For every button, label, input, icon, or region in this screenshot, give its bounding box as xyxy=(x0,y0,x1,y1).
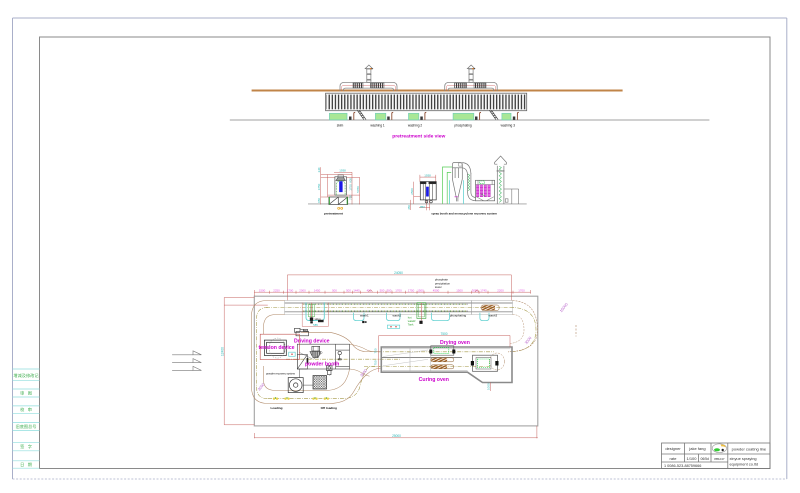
svg-text:750: 750 xyxy=(374,348,378,353)
svg-text:wash2: wash2 xyxy=(392,313,401,317)
svg-text:1700: 1700 xyxy=(287,288,294,292)
svg-text:designer: designer xyxy=(665,446,681,451)
svg-text:1700: 1700 xyxy=(518,288,525,292)
svg-text:500: 500 xyxy=(346,288,351,292)
svg-text:powder coating line: powder coating line xyxy=(732,447,767,452)
svg-text:wateR: wateR xyxy=(408,319,416,323)
svg-text:1450: 1450 xyxy=(314,288,321,292)
svg-text:1445: 1445 xyxy=(353,288,360,292)
svg-text:1750: 1750 xyxy=(348,184,352,191)
svg-text:1750: 1750 xyxy=(408,288,415,292)
svg-text:skim: skim xyxy=(337,123,344,127)
svg-text:equipment co.ltd: equipment co.ltd xyxy=(730,461,759,466)
svg-text:24050: 24050 xyxy=(394,271,403,275)
svg-text:xinyue spraying: xinyue spraying xyxy=(730,456,757,461)
svg-text:jake fang: jake fang xyxy=(688,446,705,451)
svg-text:885A37: 885A37 xyxy=(714,457,725,461)
svg-text:600: 600 xyxy=(348,178,352,183)
svg-text:签 字: 签 字 xyxy=(20,443,32,449)
svg-text:hot: hot xyxy=(408,316,412,320)
svg-text:750: 750 xyxy=(374,360,378,365)
svg-text:增减及修改记: 增减及修改记 xyxy=(13,372,39,379)
svg-text:washing 1: washing 1 xyxy=(370,123,385,127)
svg-text:spray booth and monocyclone re: spray booth and monocyclone recovery sys… xyxy=(431,212,497,216)
svg-text:2200: 2200 xyxy=(497,288,504,292)
svg-text:12400: 12400 xyxy=(220,347,224,356)
svg-text:2000: 2000 xyxy=(299,288,306,292)
svg-text:Off loading: Off loading xyxy=(321,406,337,410)
svg-text:7500: 7500 xyxy=(440,332,447,336)
svg-text:skim: skim xyxy=(315,317,322,321)
svg-text:1938: 1938 xyxy=(339,169,346,173)
svg-text:审 图: 审 图 xyxy=(20,390,32,397)
svg-text:450: 450 xyxy=(367,288,372,292)
svg-text:5780: 5780 xyxy=(356,186,360,193)
svg-text:1700: 1700 xyxy=(395,288,402,292)
svg-text:1745: 1745 xyxy=(480,288,487,292)
svg-text:500: 500 xyxy=(332,288,337,292)
svg-text:washing 2: washing 2 xyxy=(408,123,423,127)
svg-text:wash3: wash3 xyxy=(488,313,497,317)
svg-text:1938: 1938 xyxy=(424,173,431,177)
svg-text:1000: 1000 xyxy=(487,383,491,390)
svg-text:1 0086-523-88759666: 1 0086-523-88759666 xyxy=(664,464,701,468)
svg-text:校 审: 校 审 xyxy=(20,406,32,413)
svg-text:1500: 1500 xyxy=(259,288,266,292)
svg-text:1500: 1500 xyxy=(417,288,424,292)
svg-text:240: 240 xyxy=(317,167,321,172)
svg-text:Curing oven: Curing oven xyxy=(419,377,449,383)
svg-text:500: 500 xyxy=(380,288,385,292)
svg-text:tower: tower xyxy=(435,285,442,289)
svg-text:1/100: 1/100 xyxy=(686,456,697,461)
svg-text:powder booth: powder booth xyxy=(305,361,339,367)
svg-text:500: 500 xyxy=(387,288,392,292)
svg-text:tension device: tension device xyxy=(259,345,295,351)
svg-text:950: 950 xyxy=(317,198,321,203)
svg-text:750: 750 xyxy=(348,195,352,200)
svg-text:2500: 2500 xyxy=(410,188,414,195)
svg-text:06/5d: 06/5d xyxy=(700,457,709,461)
svg-text:Drying oven: Drying oven xyxy=(440,340,470,346)
svg-text:2250: 2250 xyxy=(273,288,280,292)
svg-text:powder recovery system: powder recovery system xyxy=(266,371,296,375)
svg-text:Loading: Loading xyxy=(270,406,282,410)
svg-text:3750: 3750 xyxy=(317,183,321,190)
svg-text:rate: rate xyxy=(670,456,678,461)
svg-text:850: 850 xyxy=(420,205,425,209)
svg-text:旧底图总号: 旧底图总号 xyxy=(16,423,37,430)
svg-text:wash1: wash1 xyxy=(360,313,369,317)
svg-text:1500: 1500 xyxy=(456,288,463,292)
svg-text:washing 3: washing 3 xyxy=(501,123,516,127)
svg-text:25000: 25000 xyxy=(392,434,401,438)
svg-text:450: 450 xyxy=(407,205,411,210)
svg-text:pretreatment side view: pretreatment side view xyxy=(392,134,445,140)
svg-text:Tank: Tank xyxy=(408,322,414,326)
svg-text:phosphating: phosphating xyxy=(454,123,472,127)
svg-text:phosphating: phosphating xyxy=(450,313,467,317)
svg-text:pretreatment: pretreatment xyxy=(324,212,343,216)
